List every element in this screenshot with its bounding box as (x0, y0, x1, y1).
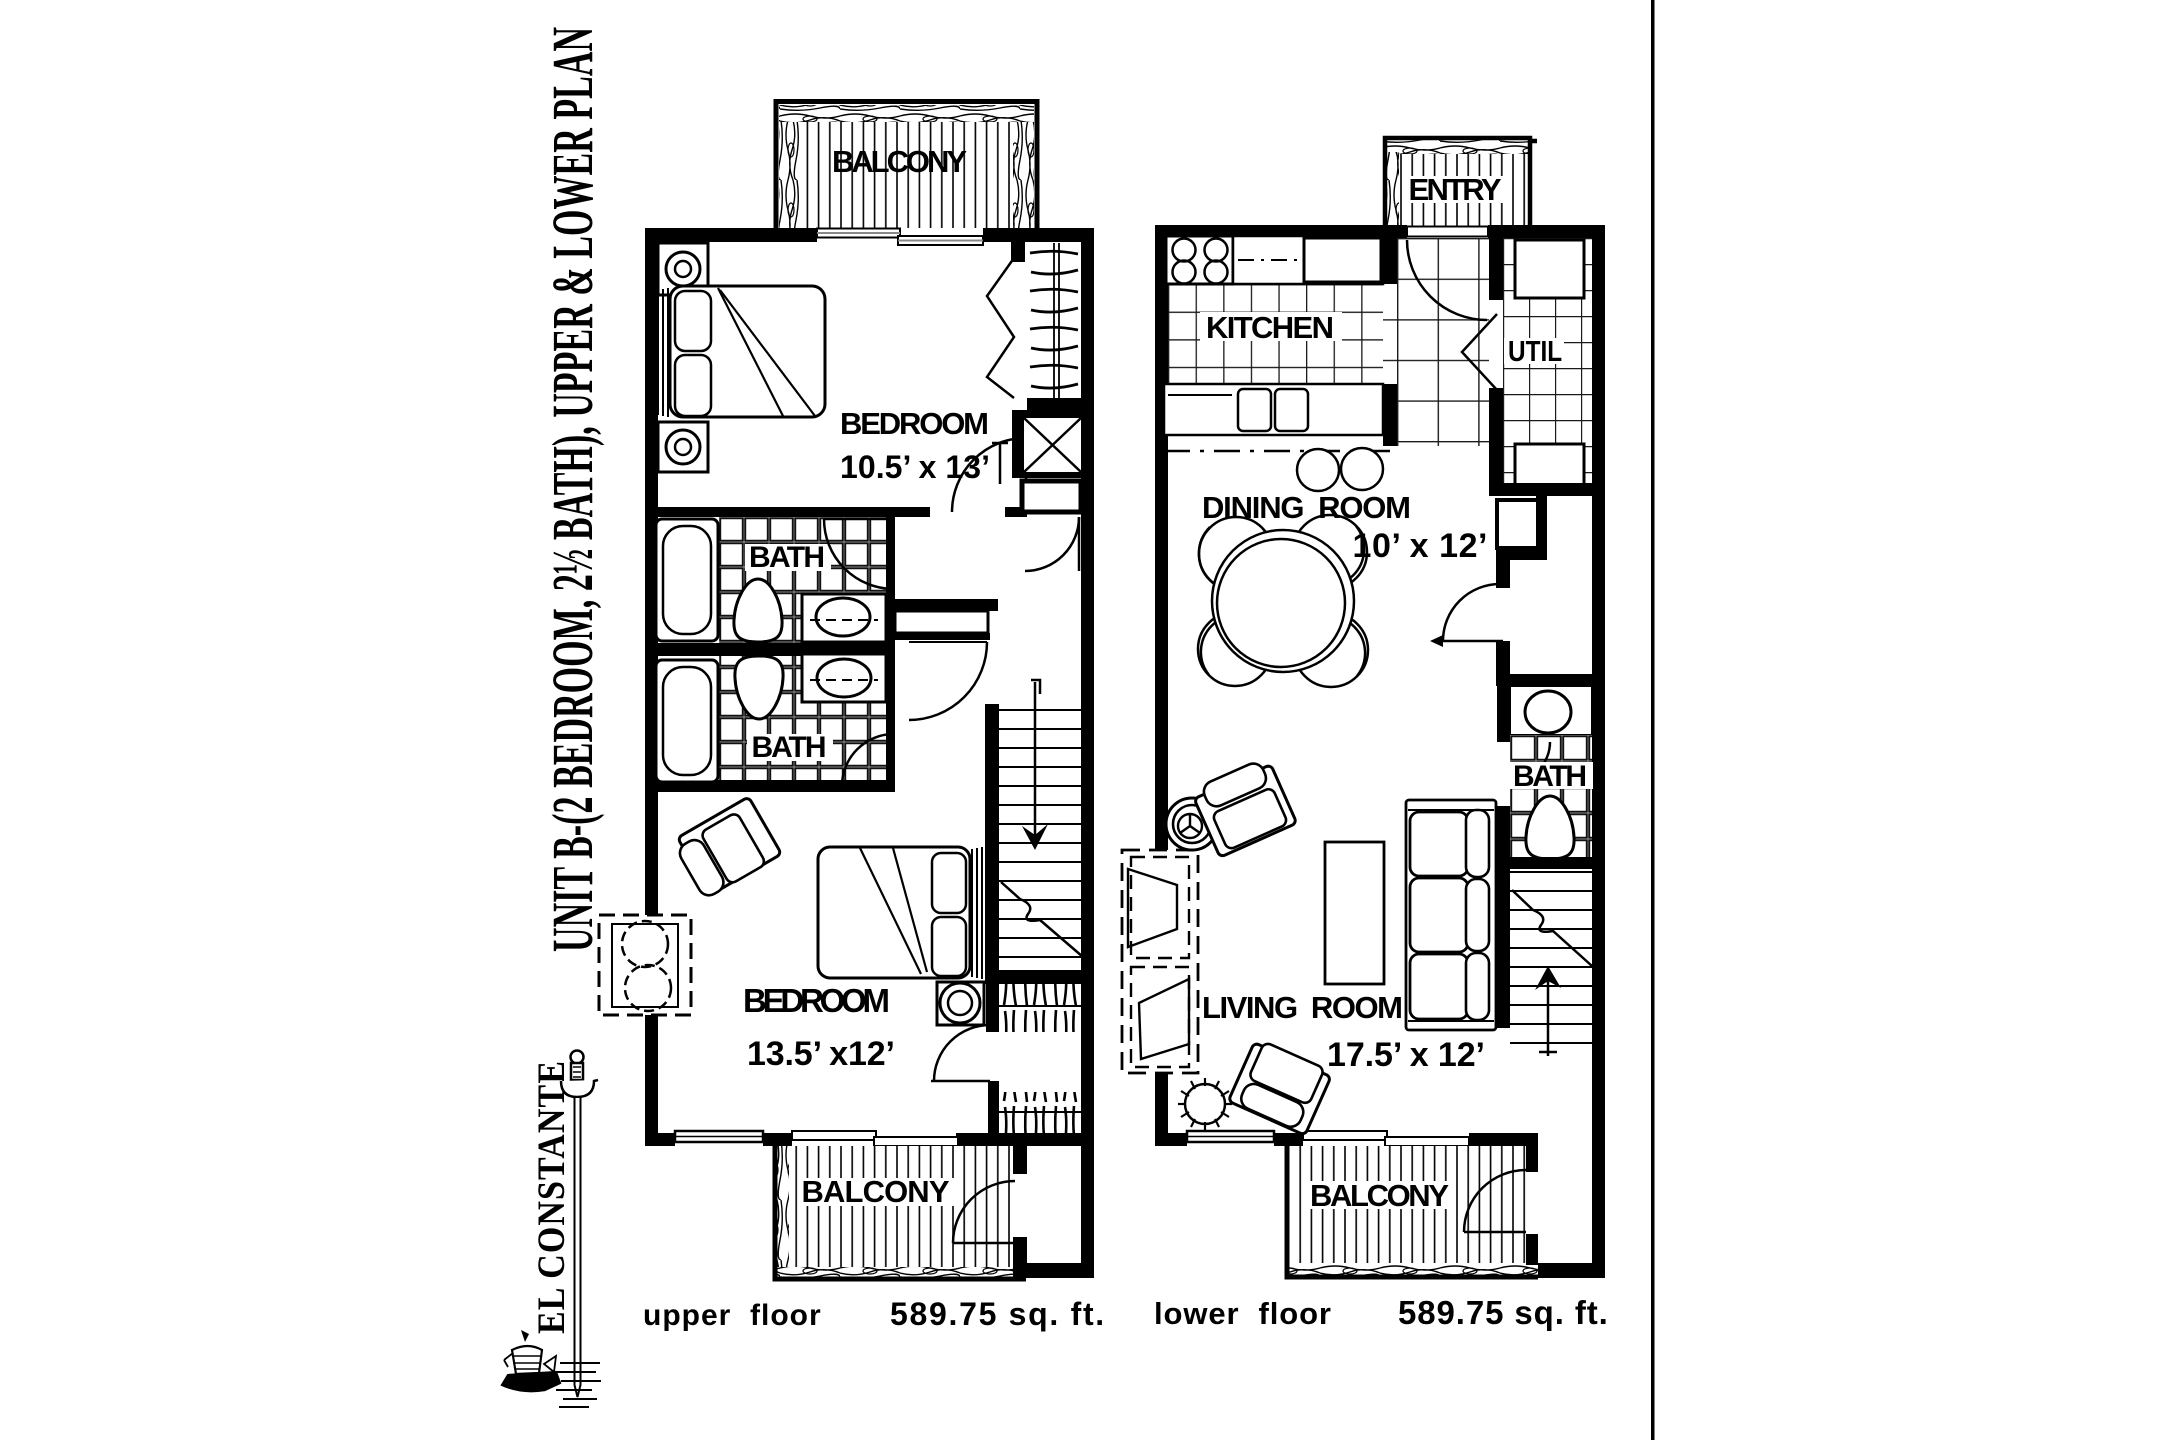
svg-text:BATH: BATH (749, 541, 827, 574)
svg-text:BALCONY: BALCONY (832, 144, 970, 179)
svg-text:BALCONY: BALCONY (1310, 1178, 1452, 1213)
svg-text:UNIT B-(2 BEDROOM, 2½ BATH), U: UNIT B-(2 BEDROOM, 2½ BATH), UPPER & LOW… (542, 27, 605, 952)
svg-text:BEDROOM: BEDROOM (743, 982, 891, 1019)
svg-text:BALCONY: BALCONY (802, 1174, 953, 1209)
svg-text:13.5’ x12’: 13.5’ x12’ (747, 1035, 895, 1073)
svg-text:BATH: BATH (752, 731, 829, 764)
svg-text:589.75 sq. ft.: 589.75 sq. ft. (1398, 1294, 1609, 1331)
svg-text:UTIL: UTIL (1508, 335, 1562, 367)
svg-text:LIVING ROOM: LIVING ROOM (1202, 990, 1404, 1025)
svg-text:ENTRY: ENTRY (1409, 172, 1504, 207)
svg-text:589.75 sq. ft.: 589.75 sq. ft. (890, 1296, 1106, 1332)
svg-text:17.5’ x 12’: 17.5’ x 12’ (1327, 1036, 1485, 1074)
svg-text:BATH: BATH (1513, 760, 1589, 793)
svg-text:10’ x 12’: 10’ x 12’ (1353, 527, 1488, 565)
svg-text:BEDROOM: BEDROOM (840, 406, 990, 441)
svg-text:DINING ROOM: DINING ROOM (1202, 490, 1412, 525)
svg-text:lower floor: lower floor (1154, 1296, 1332, 1331)
svg-text:KITCHEN: KITCHEN (1206, 310, 1336, 345)
svg-text:upper floor: upper floor (643, 1299, 822, 1332)
svg-text:EL CONSTANTE: EL CONSTANTE (529, 1061, 573, 1334)
